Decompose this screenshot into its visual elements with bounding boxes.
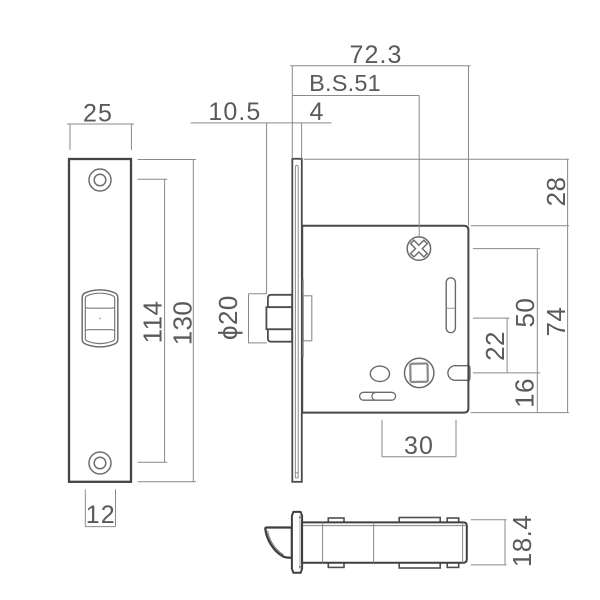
svg-text:16: 16 bbox=[510, 378, 540, 408]
svg-text:22: 22 bbox=[480, 331, 510, 361]
svg-text:4: 4 bbox=[309, 98, 324, 126]
svg-text:50: 50 bbox=[510, 298, 540, 328]
svg-text:130: 130 bbox=[168, 301, 198, 346]
svg-text:B.S.51: B.S.51 bbox=[309, 70, 381, 96]
svg-text:74: 74 bbox=[541, 307, 571, 337]
svg-text:18.4: 18.4 bbox=[507, 515, 537, 567]
svg-text:12: 12 bbox=[86, 501, 116, 529]
svg-text:72.3: 72.3 bbox=[349, 41, 402, 69]
svg-text:28: 28 bbox=[541, 177, 571, 207]
svg-text:ϕ20: ϕ20 bbox=[213, 295, 243, 340]
svg-text:114: 114 bbox=[137, 301, 167, 344]
svg-text:25: 25 bbox=[83, 99, 113, 127]
svg-text:10.5: 10.5 bbox=[208, 98, 261, 126]
svg-text:30: 30 bbox=[404, 432, 434, 460]
